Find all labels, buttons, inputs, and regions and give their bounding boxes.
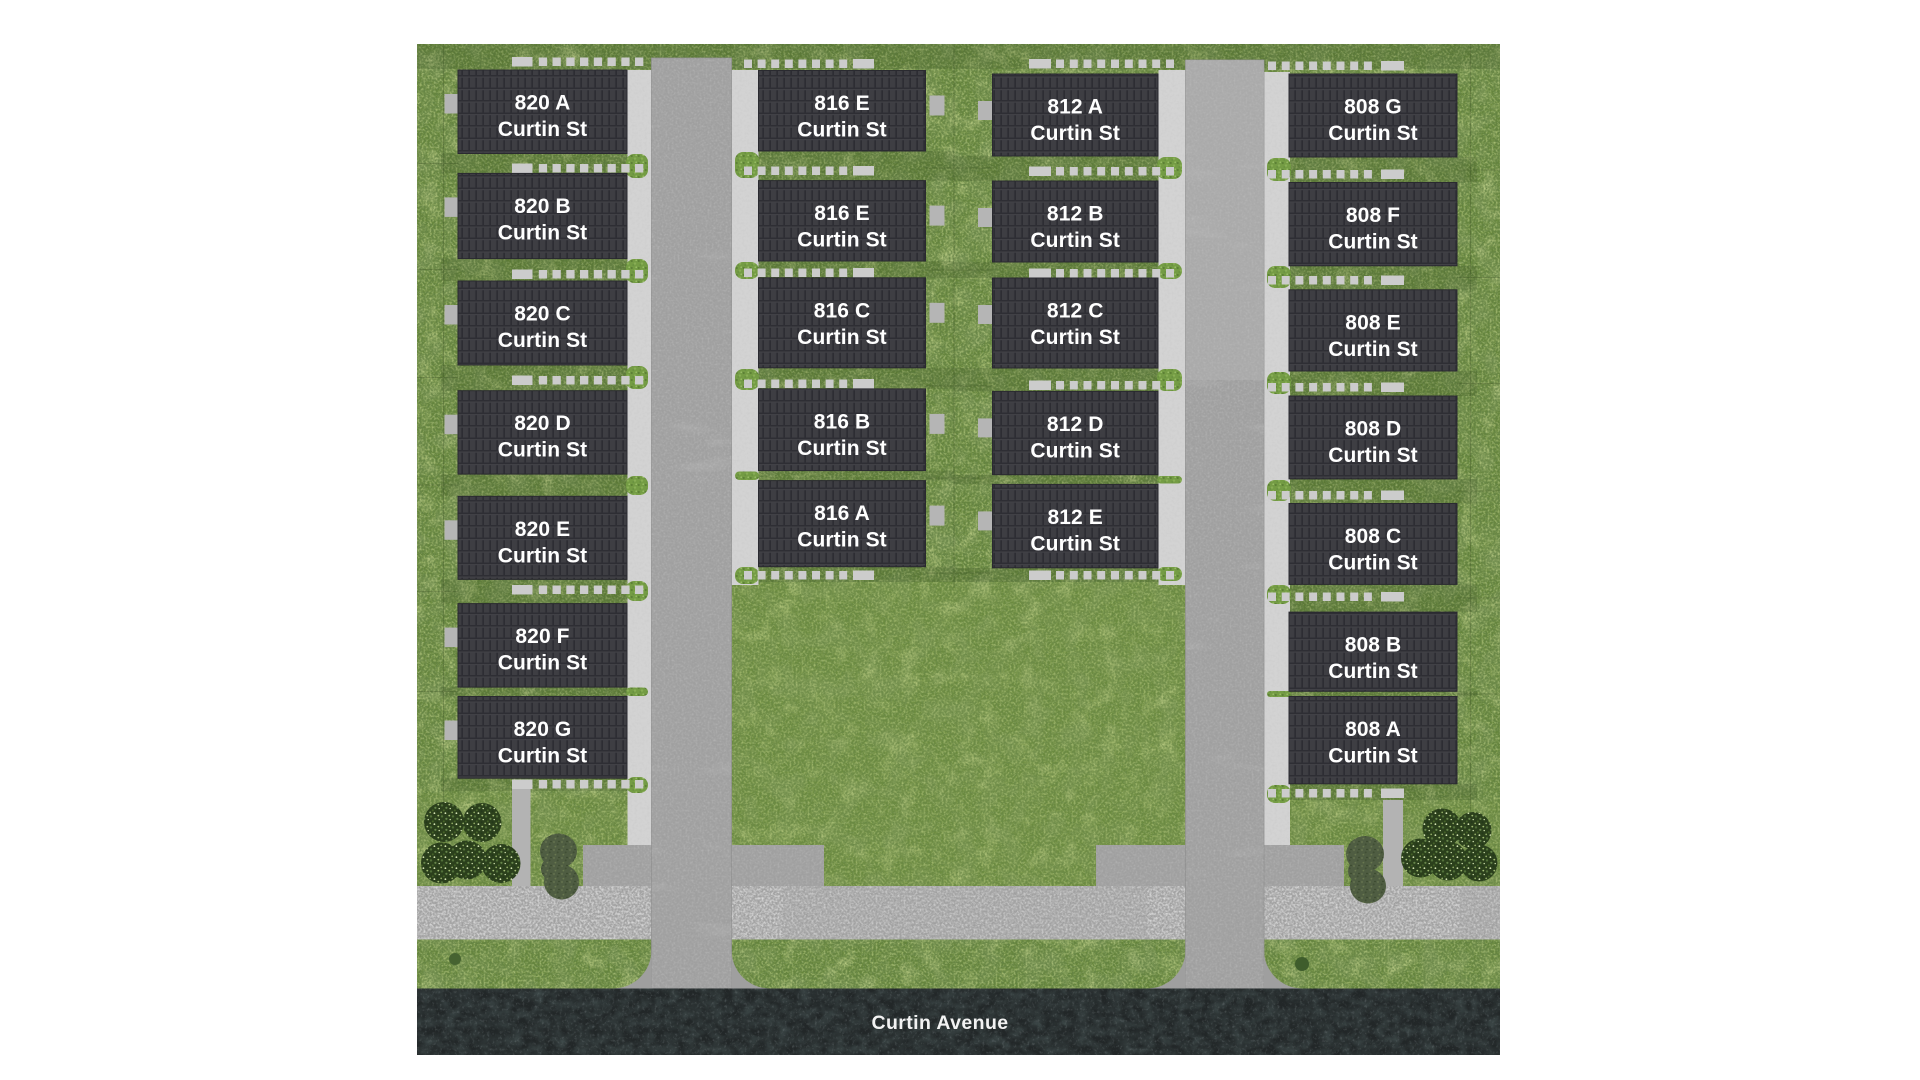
svg-text:816 E: 816 E: [814, 202, 869, 225]
svg-text:808 B: 808 B: [1345, 634, 1402, 657]
svg-text:Curtin St: Curtin St: [1030, 229, 1120, 252]
svg-text:Curtin St: Curtin St: [498, 439, 588, 462]
svg-text:820 A: 820 A: [515, 92, 571, 115]
svg-text:Curtin St: Curtin St: [498, 118, 588, 141]
svg-text:Curtin St: Curtin St: [498, 544, 588, 567]
svg-text:816 C: 816 C: [814, 299, 871, 322]
svg-text:Curtin St: Curtin St: [1328, 122, 1418, 145]
svg-text:Curtin St: Curtin St: [1328, 745, 1418, 768]
svg-text:Curtin St: Curtin St: [1328, 660, 1418, 683]
svg-text:820 C: 820 C: [514, 303, 571, 326]
svg-text:808 E: 808 E: [1345, 311, 1400, 334]
svg-text:816 A: 816 A: [814, 502, 870, 525]
svg-text:812 A: 812 A: [1047, 96, 1103, 119]
svg-text:Curtin St: Curtin St: [1328, 231, 1418, 254]
svg-text:Curtin St: Curtin St: [797, 119, 887, 142]
svg-text:Curtin St: Curtin St: [797, 437, 887, 460]
svg-text:812 B: 812 B: [1047, 203, 1104, 226]
svg-text:Curtin Avenue: Curtin Avenue: [871, 1012, 1008, 1034]
svg-text:Curtin St: Curtin St: [797, 229, 887, 252]
svg-text:808 D: 808 D: [1345, 418, 1402, 441]
svg-text:Curtin St: Curtin St: [498, 221, 588, 244]
svg-text:820 F: 820 F: [515, 625, 569, 648]
svg-text:812 D: 812 D: [1047, 413, 1104, 436]
svg-text:820 E: 820 E: [515, 518, 570, 541]
svg-text:808 C: 808 C: [1345, 525, 1402, 548]
svg-text:816 E: 816 E: [814, 92, 869, 115]
svg-text:Curtin St: Curtin St: [498, 652, 588, 675]
svg-text:820 G: 820 G: [514, 718, 572, 741]
svg-text:Curtin St: Curtin St: [1328, 338, 1418, 361]
svg-text:820 B: 820 B: [514, 195, 571, 218]
svg-text:812 E: 812 E: [1048, 506, 1103, 529]
svg-text:Curtin St: Curtin St: [498, 329, 588, 352]
svg-text:Curtin St: Curtin St: [797, 326, 887, 349]
svg-text:Curtin St: Curtin St: [797, 529, 887, 552]
svg-text:Curtin St: Curtin St: [1030, 326, 1120, 349]
svg-text:Curtin St: Curtin St: [1030, 532, 1120, 555]
svg-text:816 B: 816 B: [814, 410, 871, 433]
svg-text:812 C: 812 C: [1047, 300, 1104, 323]
svg-text:Curtin St: Curtin St: [498, 745, 588, 768]
svg-text:808 A: 808 A: [1345, 718, 1401, 741]
svg-text:Curtin St: Curtin St: [1030, 439, 1120, 462]
svg-text:Curtin St: Curtin St: [1030, 122, 1120, 145]
svg-text:Curtin St: Curtin St: [1328, 444, 1418, 467]
svg-text:Curtin St: Curtin St: [1328, 552, 1418, 575]
svg-text:808 F: 808 F: [1346, 204, 1400, 227]
svg-text:820 D: 820 D: [514, 412, 571, 435]
svg-text:808 G: 808 G: [1344, 96, 1402, 119]
